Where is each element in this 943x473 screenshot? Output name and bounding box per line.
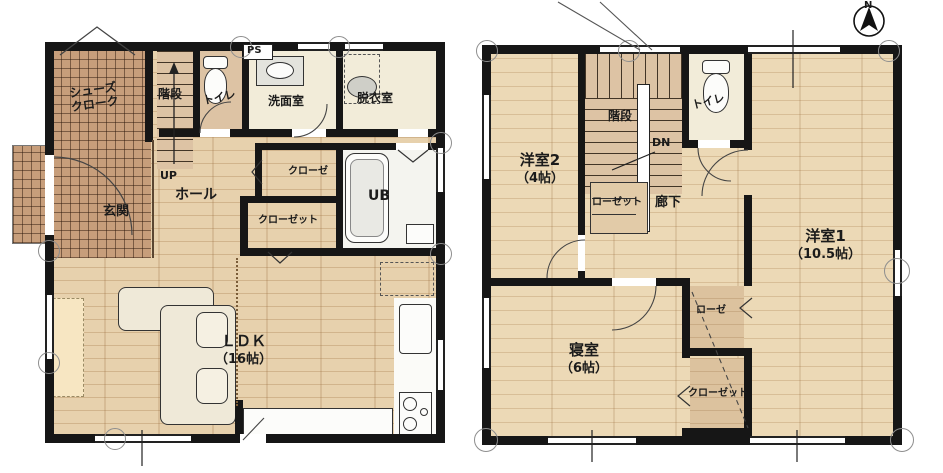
- wall: [682, 45, 689, 148]
- column-marker: [104, 428, 126, 450]
- door-opening: [240, 434, 266, 443]
- label-corridor: 廊下: [655, 196, 681, 211]
- window: [436, 148, 445, 192]
- stove-burner-3: [420, 408, 428, 416]
- column-marker: [618, 40, 640, 62]
- sofa-cushion-2: [196, 368, 228, 404]
- column-marker: [878, 40, 900, 62]
- window: [298, 42, 330, 51]
- column-marker: [430, 243, 452, 265]
- door-opening: [578, 235, 585, 271]
- stove-burner-2: [403, 417, 417, 431]
- wall: [255, 143, 262, 203]
- refrigerator-space: [380, 262, 434, 296]
- column-marker: [884, 258, 910, 284]
- label-unit-bath: UB: [368, 188, 390, 204]
- column-marker: [890, 428, 914, 452]
- wall: [682, 278, 690, 358]
- column-marker: [476, 40, 498, 62]
- wall: [682, 428, 752, 436]
- window: [600, 45, 680, 54]
- label-north: N: [864, 0, 872, 12]
- window: [345, 42, 383, 51]
- wall: [744, 195, 752, 286]
- bath-counter: [406, 224, 434, 244]
- label-ldk: ＬＤＫ: [221, 332, 266, 350]
- wall: [145, 42, 153, 142]
- wall: [193, 42, 200, 135]
- label-ps: PS: [247, 45, 262, 57]
- label-closet-upper-1f: クローゼ: [288, 166, 328, 178]
- wall: [482, 278, 688, 286]
- label-hall: ホール: [175, 187, 217, 203]
- bath-door-opening: [396, 143, 428, 150]
- label-closet-lower-2f: クローゼット: [688, 388, 748, 400]
- label-ldk-size: （16帖）: [215, 352, 272, 367]
- window: [482, 95, 491, 179]
- roof-diagonal-lines: [558, 2, 652, 50]
- door-opening: [612, 278, 656, 286]
- stove-burner-1: [403, 397, 417, 411]
- label-western-room2-size: （4帖）: [516, 171, 564, 186]
- window: [482, 298, 491, 368]
- window: [45, 295, 54, 359]
- window: [436, 340, 445, 390]
- column-marker: [430, 132, 452, 154]
- wall: [682, 348, 752, 356]
- label-stairs-1f: 階段: [158, 88, 182, 102]
- label-stairs-2f: 階段: [608, 110, 632, 124]
- entrance-step-edge: [152, 140, 154, 258]
- label-western-room2: 洋室2: [520, 151, 560, 169]
- kitchen-sink: [399, 304, 432, 354]
- column-marker: [38, 352, 60, 374]
- label-western-room1-size: （10.5帖）: [790, 247, 861, 262]
- column-marker: [474, 428, 498, 452]
- wall: [248, 196, 341, 203]
- wall: [744, 45, 752, 150]
- floor2-closet-upper-floor: [690, 286, 744, 350]
- label-washroom: 洗面室: [268, 95, 304, 109]
- wall: [893, 45, 902, 445]
- door-opening: [292, 129, 326, 137]
- kitchen-counter: [243, 408, 393, 436]
- toilet-door-opening: [698, 140, 730, 148]
- closet-shelf-line: [592, 214, 636, 215]
- floor-plan-canvas: シューズ クローク 階段 トイレ PS 洗面室 脱衣室 玄関 UP ホール クロ…: [0, 0, 943, 473]
- label-bedroom-size: （6帖）: [560, 361, 608, 376]
- window: [748, 45, 840, 54]
- label-closet-lower-1f: クローゼット: [258, 215, 318, 227]
- label-bedroom: 寝室: [569, 341, 599, 359]
- door-opening: [200, 129, 230, 137]
- wall: [336, 143, 343, 256]
- entrance-door-opening: [45, 155, 54, 235]
- window: [548, 436, 636, 445]
- window: [750, 436, 845, 445]
- label-up: UP: [160, 170, 177, 183]
- wall: [240, 196, 248, 256]
- label-dn: DN: [652, 137, 670, 150]
- column-marker: [328, 36, 350, 58]
- floor1-staircase: [157, 51, 193, 169]
- label-hall-closet: ローゼット: [592, 197, 642, 209]
- toilet-tank-2f: [702, 60, 730, 74]
- label-closet-upper-2f: ローゼ: [696, 305, 726, 317]
- column-marker: [38, 240, 60, 262]
- label-western-room1: 洋室1: [805, 227, 845, 245]
- door-opening: [398, 129, 428, 137]
- washbasin-bowl: [266, 62, 294, 79]
- label-entrance: 玄関: [103, 205, 129, 220]
- label-dressing-room: 脱衣室: [357, 92, 393, 106]
